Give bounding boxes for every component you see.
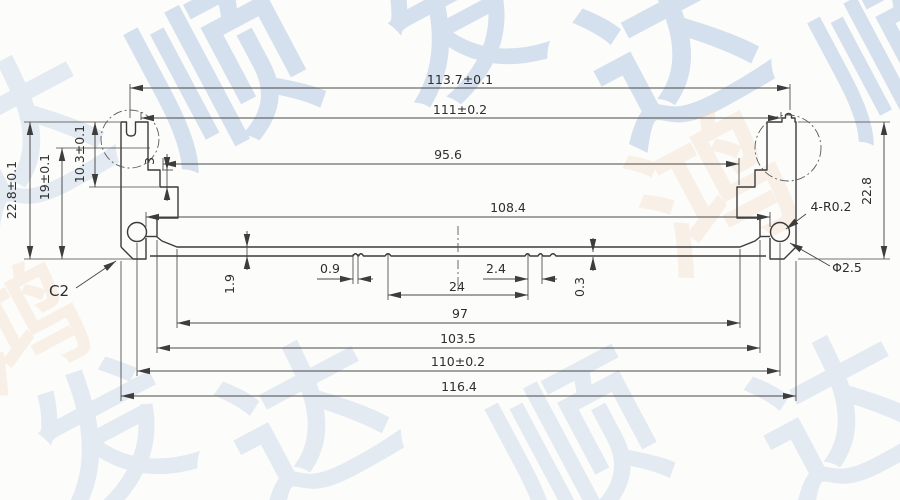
profile-main-contour xyxy=(121,114,796,248)
profile-outline xyxy=(101,110,821,292)
dim-label-height-left: 22.8±0.1 xyxy=(4,161,19,219)
callout-hole-label: Φ2.5 xyxy=(832,260,862,275)
dimension-lines xyxy=(30,88,884,396)
dim-label-top-width-outer: 113.7±0.1 xyxy=(427,72,493,87)
callout-radius-label: 4-R0.2 xyxy=(810,199,851,214)
dim-label-top-width-inner: 111±0.2 xyxy=(433,102,487,117)
dim-label-height-mid: 19±0.1 xyxy=(37,154,52,200)
dimension-labels: 113.7±0.1 111±0.2 95.6 108.4 97 103.5 11… xyxy=(4,72,874,394)
dim-label-boss-span: 108.4 xyxy=(490,200,526,215)
dim-label-rib-group-span: 24 xyxy=(449,279,465,294)
dim-label-step-small: 3 xyxy=(142,157,157,165)
dim-label-web-width: 97 xyxy=(452,306,468,321)
dim-label-pocket-span: 103.5 xyxy=(440,331,476,346)
dim-label-inner-opening: 95.6 xyxy=(434,147,462,162)
dim-label-height-step: 10.3±0.1 xyxy=(72,125,87,183)
dim-label-height-right: 22.8 xyxy=(859,177,874,205)
dim-label-rib-pair: 2.4 xyxy=(486,261,506,276)
drawing-sheet: 顺 发 达 顺 达 鸿 鸿 达 顺 达 发 xyxy=(0,0,900,500)
screw-boss-left xyxy=(128,223,147,242)
dim-label-rib-width: 0.9 xyxy=(320,261,340,276)
dim-label-rib-height: 0.3 xyxy=(572,277,587,297)
dim-label-overall-width: 116.4 xyxy=(441,379,477,394)
dim-label-web-thickness: 1.9 xyxy=(222,274,237,294)
dim-label-hole-centers: 110±0.2 xyxy=(431,354,485,369)
extrusion-profile-drawing: 113.7±0.1 111±0.2 95.6 108.4 97 103.5 11… xyxy=(0,0,900,500)
leader-chamfer-c2 xyxy=(76,261,116,288)
detail-circle-right xyxy=(755,115,821,181)
callout-chamfer-label: C2 xyxy=(49,282,69,300)
screw-boss-right xyxy=(771,223,790,242)
